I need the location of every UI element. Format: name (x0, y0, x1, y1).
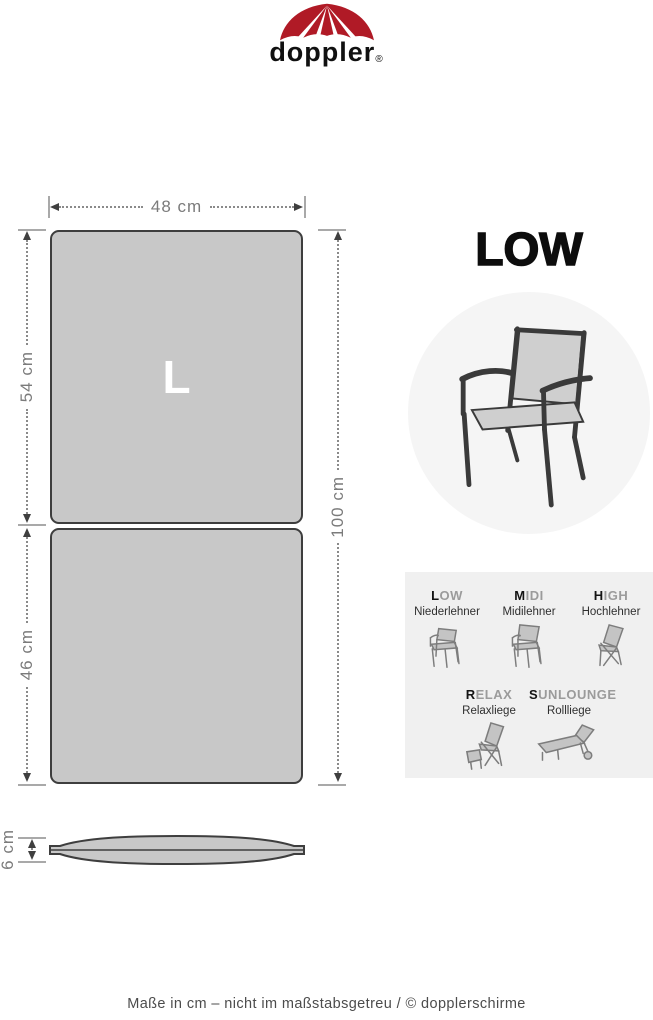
dimension-line (210, 206, 294, 208)
arrow-down-icon (23, 514, 31, 523)
chair-low-icon (424, 622, 470, 672)
thickness-dimension-label-wrap: 6 cm (0, 824, 17, 874)
umbrella-logo-icon (279, 2, 375, 42)
chair-hero-icon (408, 292, 650, 534)
type-cell-low: LOW Niederlehner (406, 588, 488, 677)
extension-line (18, 524, 46, 526)
chair-type-panel: LOW Niederlehner (405, 572, 653, 778)
registered-mark: ® (375, 54, 383, 65)
extension-line (318, 784, 346, 786)
type-subtitle: Relaxliege (449, 705, 529, 717)
arrow-up-icon (334, 231, 342, 240)
type-code: RELAX (449, 687, 529, 702)
type-code: LOW (406, 588, 488, 603)
arrow-down-icon (23, 773, 31, 782)
lower-height-dimension-label: 46 cm (17, 629, 37, 680)
type-row-2: RELAX Relaxliege SUNLOUNG (405, 687, 653, 778)
chair-relax-icon (463, 721, 515, 773)
footer-note: Maße in cm – nicht im maßstabsgetreu / ©… (0, 996, 653, 1012)
type-code: SUNLOUNGE (529, 687, 609, 702)
lower-height-dimension: 46 cm (20, 528, 34, 782)
dimension-line (337, 543, 339, 773)
extension-line (18, 861, 46, 863)
arrow-down-icon (334, 773, 342, 782)
cushion-side-view (46, 834, 308, 866)
brand-name: doppler® (0, 39, 653, 66)
type-code: HIGH (570, 588, 652, 603)
cushion-backrest-section: L (50, 230, 303, 524)
arrow-right-icon (294, 203, 303, 211)
thickness-dimension (26, 839, 38, 860)
dimension-line (26, 240, 28, 345)
type-subtitle: Midilehner (488, 606, 570, 618)
hero-circle (408, 292, 650, 534)
arrow-up-icon (23, 231, 31, 240)
product-dimension-sheet: doppler® 48 cm L 54 cm 46 cm 100 cm (0, 0, 653, 1020)
dimension-line (337, 240, 339, 470)
type-subtitle: Niederlehner (406, 606, 488, 618)
dimension-line (26, 687, 28, 773)
arrow-up-icon (23, 528, 31, 537)
total-height-dimension-label: 100 cm (328, 476, 348, 538)
type-cell-midi: MIDI Midilehner (488, 588, 570, 677)
type-code: MIDI (488, 588, 570, 603)
extension-line (304, 196, 306, 218)
brand-logo: doppler® (0, 2, 653, 66)
type-subtitle: Hochlehner (570, 606, 652, 618)
type-cell-high: HIGH Hochlehner (570, 588, 652, 677)
size-letter: L (162, 354, 190, 400)
sunlounge-icon (533, 721, 605, 767)
total-height-dimension: 100 cm (331, 231, 345, 782)
arrow-left-icon (50, 203, 59, 211)
chair-high-icon (588, 622, 634, 672)
type-cell-relax: RELAX Relaxliege (449, 687, 529, 778)
upper-height-dimension: 54 cm (20, 231, 34, 523)
product-type-title: LOW (405, 222, 653, 276)
dimension-line (26, 409, 28, 514)
cushion-seat-section (50, 528, 303, 784)
arrow-down-icon (28, 851, 36, 860)
type-row-1: LOW Niederlehner (405, 572, 653, 677)
dimension-line (59, 206, 143, 208)
type-cell-sunlounge: SUNLOUNGE Rollliege (529, 687, 609, 778)
extension-line (18, 784, 46, 786)
type-subtitle: Rollliege (529, 705, 609, 717)
chair-midi-icon (506, 622, 552, 672)
thickness-dimension-label: 6 cm (0, 829, 18, 870)
arrow-up-icon (28, 839, 36, 848)
dimension-line (26, 537, 28, 623)
upper-height-dimension-label: 54 cm (17, 351, 37, 402)
width-dimension-label: 48 cm (151, 197, 202, 217)
width-dimension: 48 cm (50, 199, 303, 215)
